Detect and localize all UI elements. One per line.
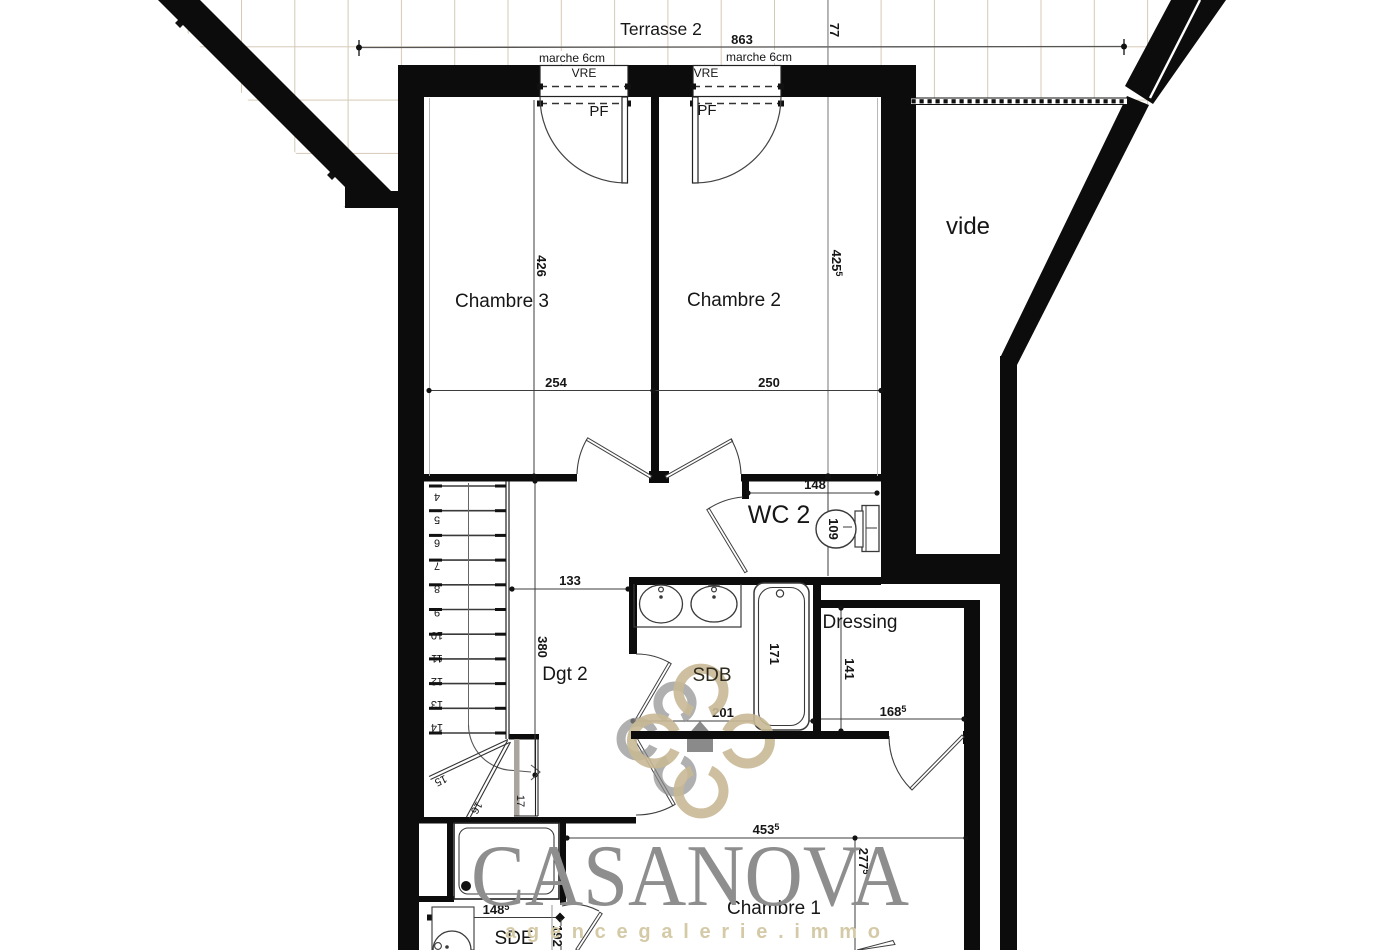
svg-text:380: 380 [535,636,550,658]
svg-text:148: 148 [804,477,826,492]
svg-text:agencegalerie.immo: agencegalerie.immo [505,921,890,943]
svg-text:Chambre 3: Chambre 3 [455,291,549,312]
svg-text:250: 250 [758,375,780,390]
svg-text:14: 14 [431,721,443,733]
svg-text:6: 6 [434,537,440,549]
svg-text:141: 141 [842,658,857,680]
svg-text:VRE: VRE [572,66,597,80]
svg-text:863: 863 [731,32,753,47]
svg-text:77: 77 [827,23,842,37]
svg-text:8: 8 [434,583,440,595]
svg-text:17: 17 [514,795,526,807]
svg-text:SDB: SDB [692,665,731,686]
svg-text:13: 13 [431,698,443,710]
svg-text:marche 6cm: marche 6cm [726,50,792,64]
svg-text:5: 5 [434,514,440,526]
svg-text:254: 254 [545,375,567,390]
svg-text:171: 171 [767,643,782,665]
svg-text:11: 11 [431,652,442,664]
svg-text:vide: vide [946,213,990,240]
svg-text:9: 9 [434,606,440,618]
svg-text:Chambre 2: Chambre 2 [687,290,781,311]
svg-text:426: 426 [534,255,549,277]
svg-text:7: 7 [434,560,440,572]
svg-text:marche 6cm: marche 6cm [539,51,605,65]
svg-text:Dgt 2: Dgt 2 [542,664,587,685]
svg-text:CASANOVA: CASANOVA [471,828,909,925]
svg-text:Terrasse 2: Terrasse 2 [620,19,702,39]
svg-text:4: 4 [434,491,440,503]
svg-text:133: 133 [559,573,581,588]
svg-text:PF: PF [589,103,608,120]
svg-text:VRE: VRE [694,66,719,80]
svg-text:Dressing: Dressing [823,612,898,633]
svg-text:WC 2: WC 2 [748,501,811,529]
svg-text:10: 10 [431,629,443,641]
svg-text:12: 12 [431,675,443,687]
svg-text:PF: PF [697,102,716,119]
svg-text:109: 109 [826,518,841,540]
